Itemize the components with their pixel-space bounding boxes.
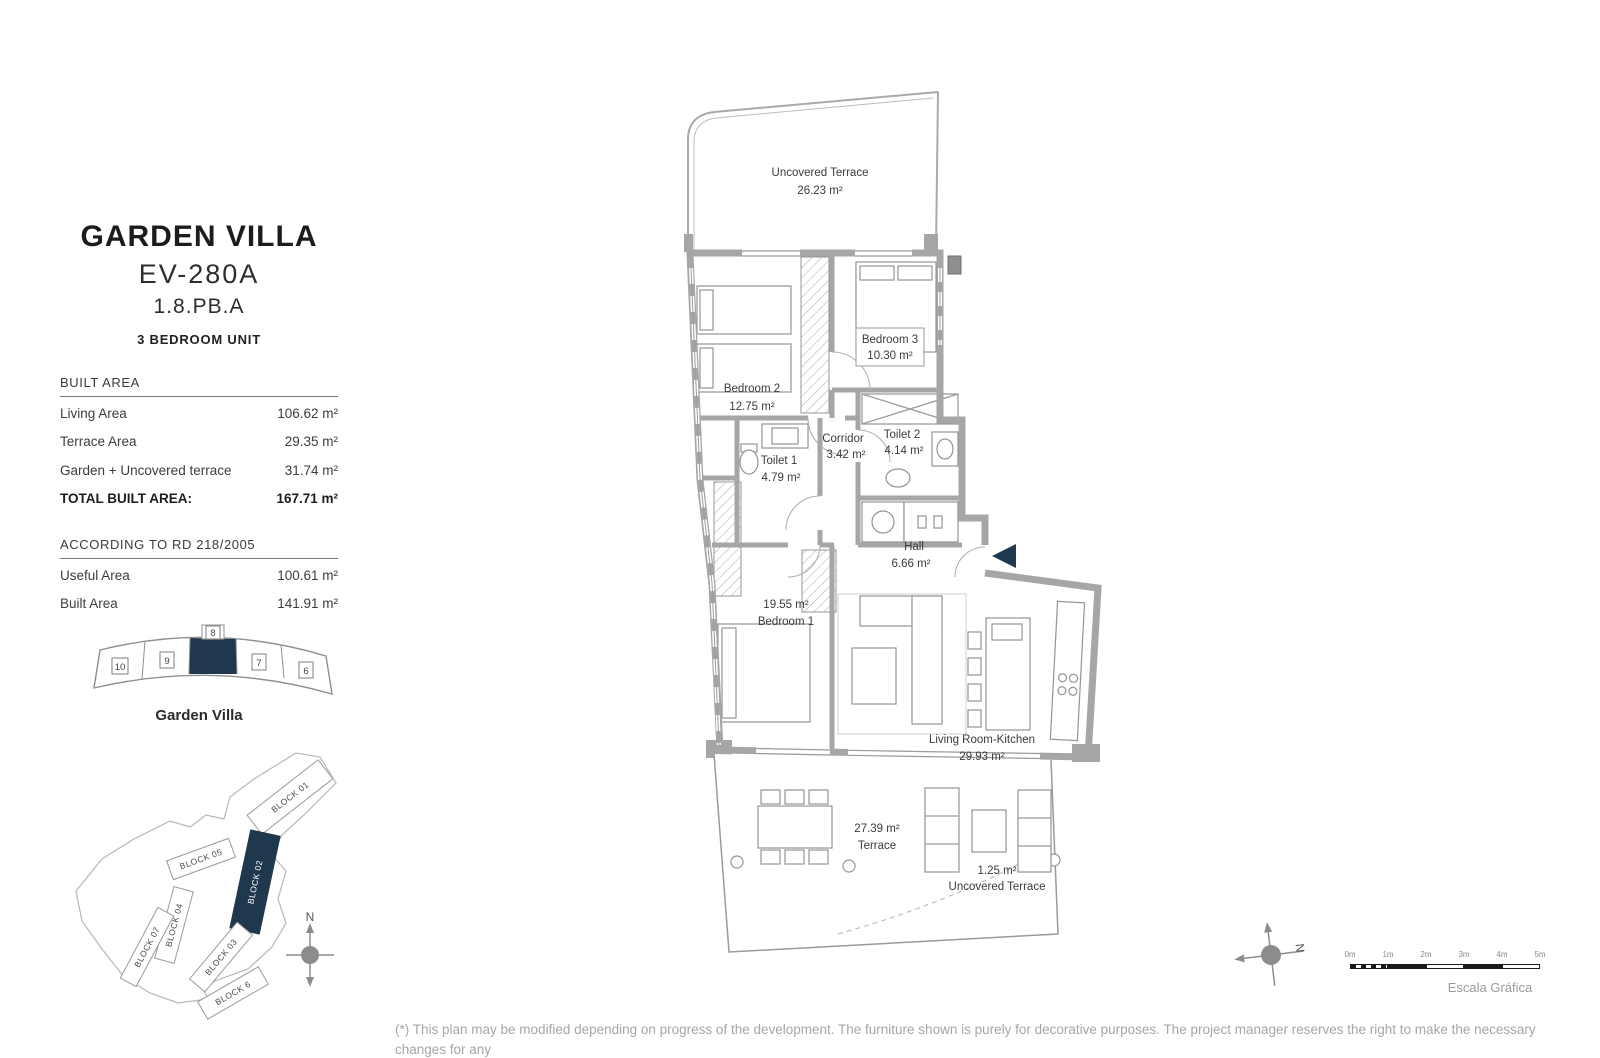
total-built-area-row: TOTAL BUILT AREA: 167.71 m² bbox=[60, 483, 338, 512]
page-title: GARDEN VILLA bbox=[60, 220, 338, 254]
room-label: Bedroom 1 bbox=[758, 616, 814, 628]
scale-bar: 0m 1m 2m 3m 4m 5m bbox=[1350, 950, 1540, 976]
room-label: Uncovered Terrace bbox=[949, 881, 1046, 893]
site-block-05: BLOCK 05 bbox=[167, 838, 236, 879]
area-label: TOTAL BUILT AREA: bbox=[60, 491, 192, 506]
highlighted-unit-8 bbox=[189, 638, 237, 674]
scale-caption: Escala Gráfica bbox=[1390, 980, 1590, 995]
room-area: 6.66 m² bbox=[892, 558, 931, 570]
room-area: 10.30 m² bbox=[867, 350, 913, 362]
plan-north-arrow: N bbox=[1225, 915, 1345, 1000]
unit-type: 3 BEDROOM UNIT bbox=[60, 332, 338, 347]
room-label: Hall bbox=[904, 541, 924, 553]
title-block: GARDEN VILLA EV-280A 1.8.PB.A 3 BEDROOM … bbox=[60, 220, 338, 347]
unit-number: 10 bbox=[115, 662, 126, 673]
built-area-heading: BUILT AREA bbox=[60, 375, 338, 397]
room-label: Toilet 1 bbox=[761, 455, 797, 467]
room-area: 4.14 m² bbox=[885, 445, 924, 457]
outdoor-sofa bbox=[1018, 790, 1051, 872]
room-area: 3.42 m² bbox=[827, 449, 866, 461]
disclaimer: (*) This plan may be modified depending … bbox=[395, 1020, 1555, 1058]
site-block-01: BLOCK 01 bbox=[247, 760, 333, 834]
room-label: Corridor bbox=[822, 433, 864, 445]
floor-plan-page: GARDEN VILLA EV-280A 1.8.PB.A 3 BEDROOM … bbox=[0, 0, 1600, 1058]
area-row: Garden + Uncovered terrace 31.74 m² bbox=[60, 454, 338, 483]
room-area: 4.79 m² bbox=[762, 472, 801, 484]
scale-tick: 5m bbox=[1534, 950, 1545, 959]
compass-icon bbox=[1230, 918, 1307, 990]
floor-plan-drawing: Uncovered Terrace 26.23 m² Bedroom 2 12.… bbox=[650, 80, 1110, 970]
dining-table bbox=[758, 806, 832, 848]
room-label: Toilet 2 bbox=[884, 429, 920, 441]
north-label: N bbox=[306, 910, 315, 924]
rd218-heading: ACCORDING TO RD 218/2005 bbox=[60, 537, 338, 559]
room-area: 1.25 m² bbox=[978, 865, 1017, 877]
unit-reference: 1.8.PB.A bbox=[60, 295, 338, 319]
unit-number: 8 bbox=[210, 628, 215, 639]
scale-tick: 1m bbox=[1382, 950, 1393, 959]
wardrobe bbox=[801, 257, 829, 413]
room-area: 12.75 m² bbox=[729, 401, 775, 413]
room-label: Bedroom 3 bbox=[862, 334, 918, 346]
area-value: 106.62 m² bbox=[277, 406, 338, 421]
room-area: 27.39 m² bbox=[854, 823, 900, 835]
coffee-table bbox=[852, 648, 896, 704]
area-label: Useful Area bbox=[60, 568, 130, 583]
room-area: 19.55 m² bbox=[763, 599, 809, 611]
north-label: N bbox=[1293, 943, 1308, 953]
area-row: Terrace Area 29.35 m² bbox=[60, 426, 338, 455]
area-value: 141.91 m² bbox=[277, 596, 338, 611]
sofa bbox=[912, 596, 942, 724]
outdoor-table bbox=[972, 810, 1006, 852]
room-label: Uncovered Terrace bbox=[772, 167, 869, 179]
area-label: Built Area bbox=[60, 596, 118, 611]
outdoor-sofa bbox=[925, 788, 959, 872]
area-value: 100.61 m² bbox=[277, 568, 338, 583]
area-label: Garden + Uncovered terrace bbox=[60, 463, 231, 478]
area-row: Useful Area 100.61 m² bbox=[60, 559, 338, 588]
unit-strip-diagram: 10 9 8 7 6 bbox=[88, 620, 338, 715]
area-label: Terrace Area bbox=[60, 434, 137, 449]
unit-model: EV-280A bbox=[60, 259, 338, 290]
area-tables: BUILT AREA Living Area 106.62 m² Terrace… bbox=[60, 375, 338, 616]
scale-tick: 0m bbox=[1344, 950, 1355, 959]
room-terrace-bottom bbox=[714, 754, 1060, 952]
room-label: Living Room-Kitchen bbox=[929, 734, 1035, 746]
area-value: 29.35 m² bbox=[285, 434, 338, 449]
scale-tick: 3m bbox=[1458, 950, 1469, 959]
area-label: Living Area bbox=[60, 406, 127, 421]
unit-number: 7 bbox=[256, 658, 261, 669]
room-label: Bedroom 2 bbox=[724, 383, 780, 395]
scale-bar-segments bbox=[1350, 964, 1540, 969]
unit-number: 9 bbox=[164, 656, 169, 667]
area-value: 167.71 m² bbox=[276, 491, 338, 506]
built-area-table: BUILT AREA Living Area 106.62 m² Terrace… bbox=[60, 375, 338, 511]
scale-tick: 4m bbox=[1496, 950, 1507, 959]
room-label: Terrace bbox=[858, 840, 896, 852]
site-plan: BLOCK 01 BLOCK 02 BLOCK 05 BLOCK 04 BLOC… bbox=[58, 735, 363, 1020]
strip-caption: Garden Villa bbox=[60, 707, 338, 724]
room-area: 26.23 m² bbox=[797, 185, 843, 197]
north-arrow-icon: N bbox=[286, 910, 334, 987]
area-row: Living Area 106.62 m² bbox=[60, 397, 338, 426]
room-area: 29.93 m² bbox=[959, 751, 1005, 763]
area-value: 31.74 m² bbox=[285, 463, 338, 478]
site-block-02-highlighted: BLOCK 02 bbox=[230, 830, 280, 934]
scale-tick: 2m bbox=[1420, 950, 1431, 959]
area-row: Built Area 141.91 m² bbox=[60, 588, 338, 617]
disclaimer-line: (*) This plan may be modified depending … bbox=[395, 1020, 1555, 1058]
entrance-arrow-icon bbox=[992, 544, 1016, 568]
unit-number: 6 bbox=[303, 666, 308, 677]
rd218-table: ACCORDING TO RD 218/2005 Useful Area 100… bbox=[60, 537, 338, 616]
